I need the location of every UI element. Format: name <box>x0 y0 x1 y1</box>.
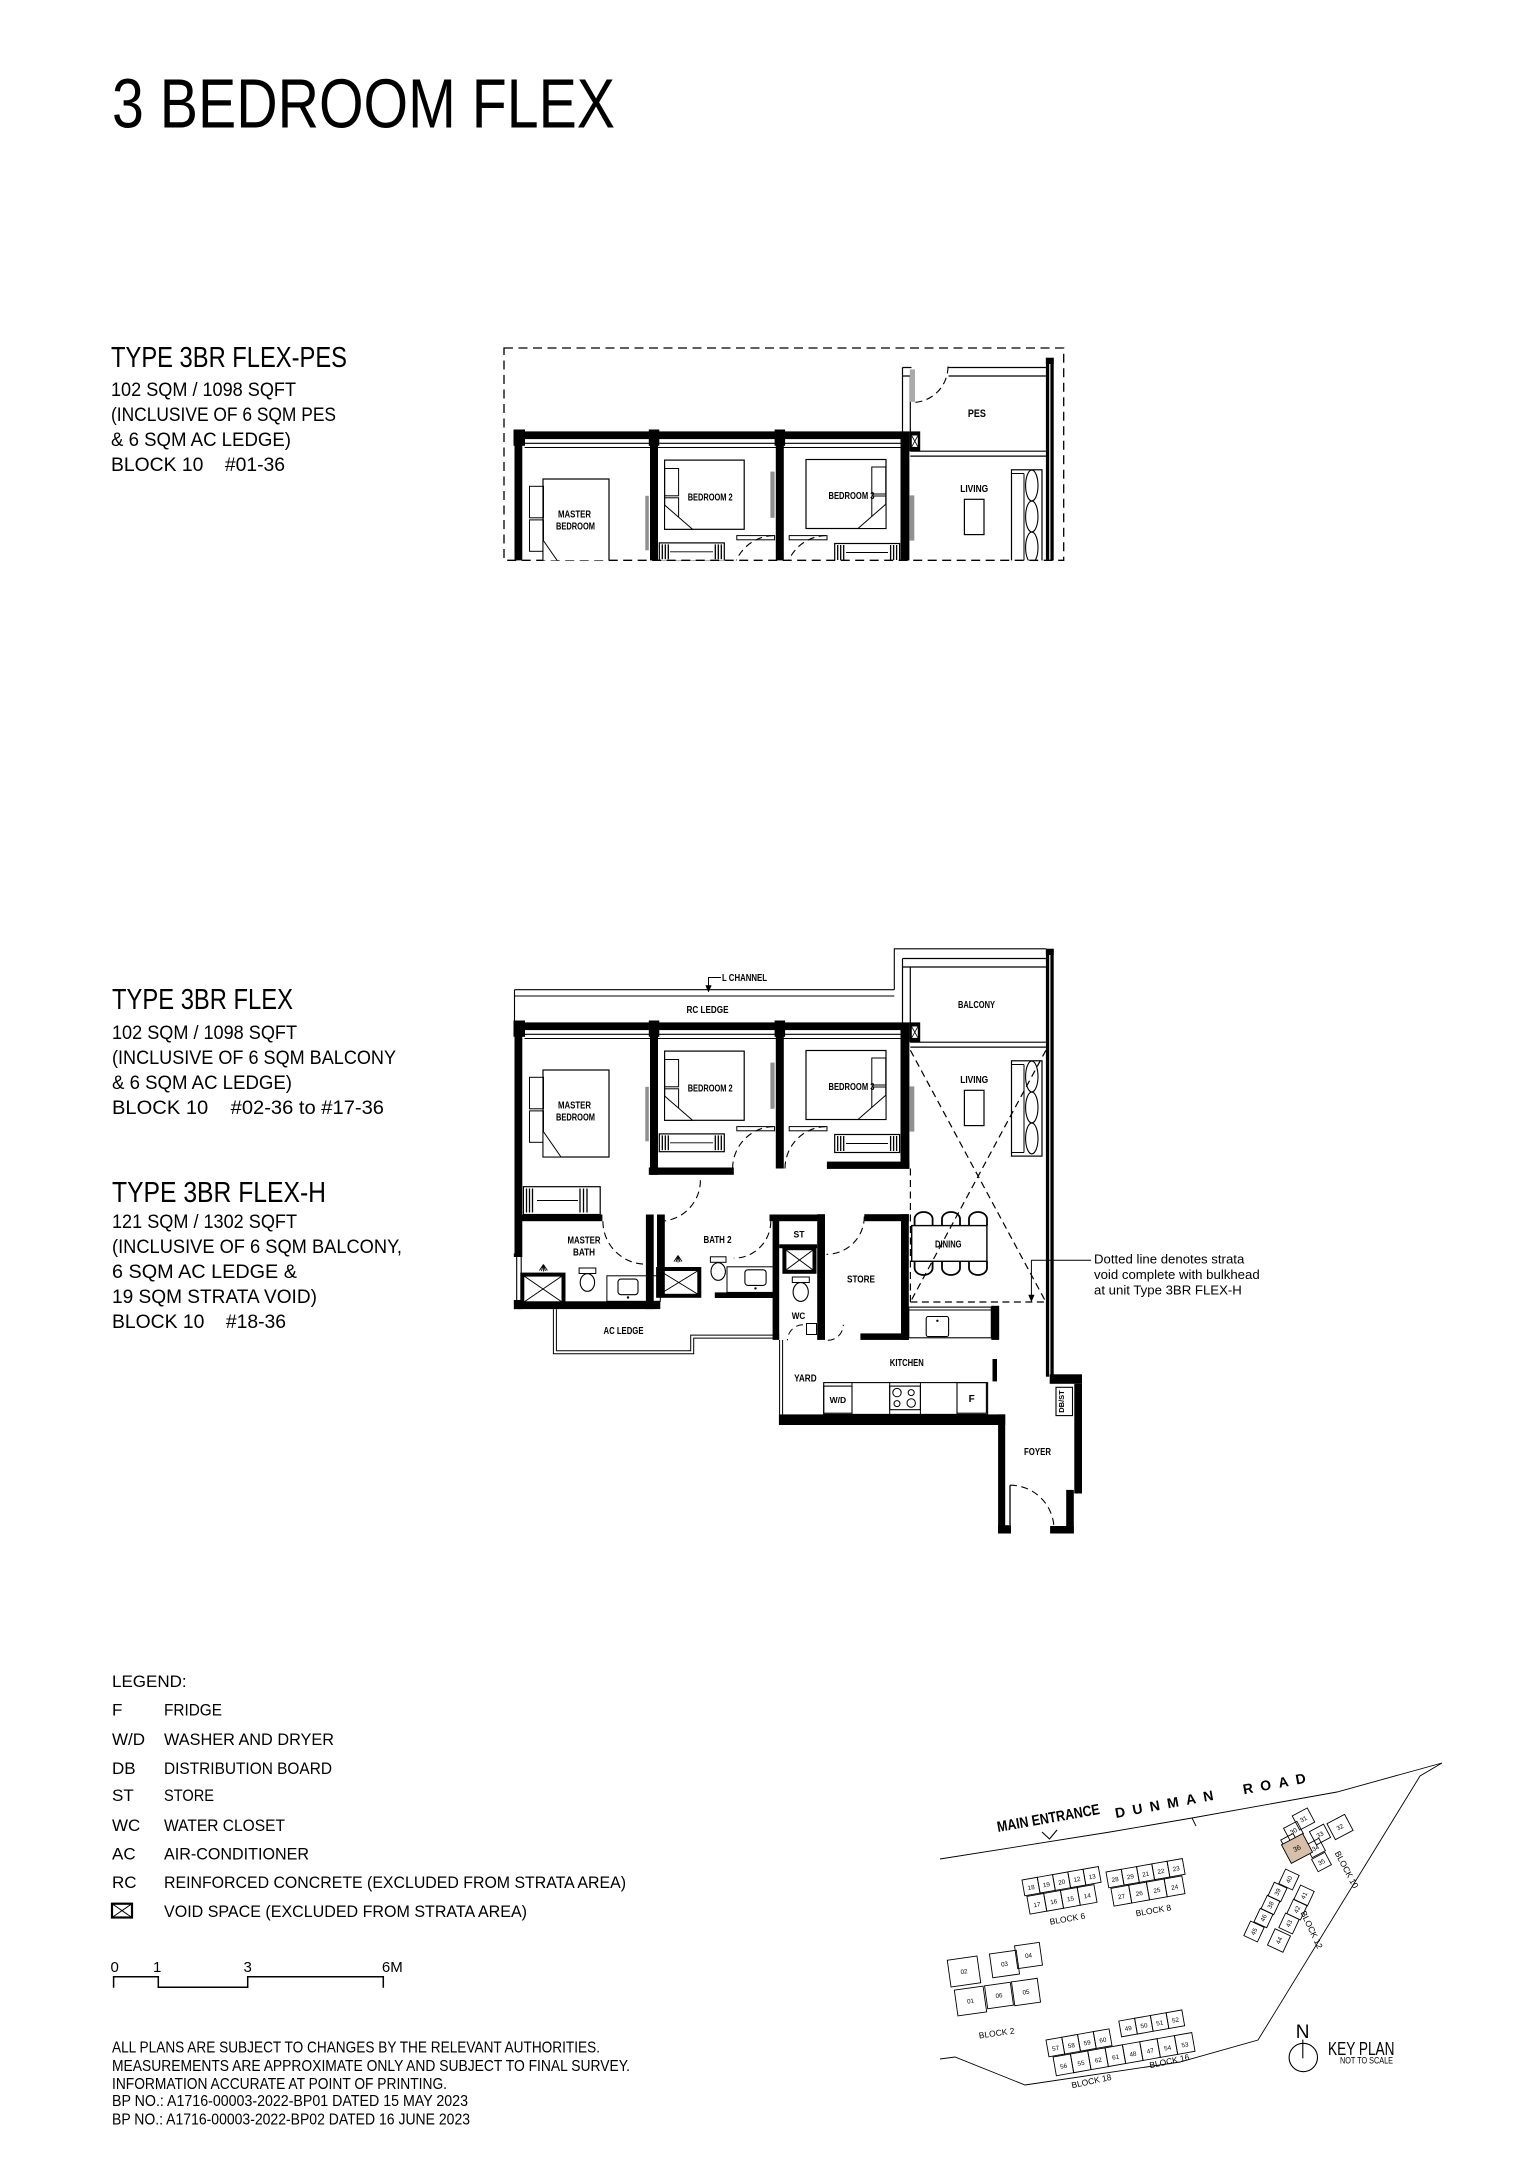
svg-text:102 SQM / 1098 SQFT: 102 SQM / 1098 SQFT <box>112 1023 297 1044</box>
svg-text:BLOCK 18: BLOCK 18 <box>1070 2072 1112 2090</box>
svg-text:BLOCK 10 #01-36: BLOCK 10 #01-36 <box>111 455 285 476</box>
svg-text:MEASUREMENTS ARE APPROXIMATE O: MEASUREMENTS ARE APPROXIMATE ONLY AND SU… <box>112 2058 630 2075</box>
svg-text:04: 04 <box>1025 1952 1033 1960</box>
svg-text:STORE: STORE <box>847 1274 875 1286</box>
svg-text:BALCONY: BALCONY <box>958 999 995 1011</box>
svg-text:& 6 SQM AC LEDGE): & 6 SQM AC LEDGE) <box>112 1073 292 1094</box>
svg-text:13: 13 <box>1088 1873 1097 1881</box>
svg-text:RC LEDGE: RC LEDGE <box>687 1004 729 1016</box>
svg-text:43: 43 <box>1285 1919 1295 1929</box>
svg-text:L CHANNEL: L CHANNEL <box>722 972 767 984</box>
svg-text:29: 29 <box>1126 1873 1135 1881</box>
svg-text:BLOCK 10 #18-36: BLOCK 10 #18-36 <box>112 1312 286 1333</box>
svg-text:121 SQM / 1302 SQFT: 121 SQM / 1302 SQFT <box>112 1212 297 1233</box>
svg-text:F: F <box>969 1394 975 1405</box>
svg-text:FRIDGE: FRIDGE <box>164 1701 222 1720</box>
svg-text:W/D: W/D <box>112 1730 145 1749</box>
svg-text:BATH: BATH <box>573 1248 595 1259</box>
svg-text:28: 28 <box>1111 1876 1120 1884</box>
svg-text:WC: WC <box>792 1311 806 1322</box>
svg-text:REINFORCED CONCRETE (EXCLUDED: REINFORCED CONCRETE (EXCLUDED FROM STRAT… <box>164 1873 626 1892</box>
svg-text:void complete with bulkhead: void complete with bulkhead <box>1094 1267 1260 1282</box>
svg-text:STORE: STORE <box>164 1786 214 1805</box>
svg-text:48: 48 <box>1129 2050 1138 2058</box>
svg-text:31: 31 <box>1299 1815 1309 1825</box>
svg-text:(INCLUSIVE OF 6 SQM BALCONY,: (INCLUSIVE OF 6 SQM BALCONY, <box>112 1237 402 1258</box>
svg-text:22: 22 <box>1157 1868 1166 1876</box>
svg-text:1: 1 <box>153 1959 161 1976</box>
svg-text:BLOCK 16: BLOCK 16 <box>1148 2052 1190 2070</box>
svg-text:DISTRIBUTION BOARD: DISTRIBUTION BOARD <box>164 1759 332 1778</box>
svg-text:57: 57 <box>1052 2045 1061 2053</box>
svg-text:14: 14 <box>1083 1892 1092 1900</box>
svg-text:62: 62 <box>1094 2057 1103 2065</box>
svg-text:25: 25 <box>1153 1887 1162 1895</box>
svg-text:19 SQM STRATA VOID): 19 SQM STRATA VOID) <box>112 1287 317 1308</box>
svg-text:DB: DB <box>112 1759 136 1778</box>
svg-text:17: 17 <box>1033 1901 1042 1909</box>
svg-text:05: 05 <box>1022 1989 1030 1997</box>
svg-text:NOT TO SCALE: NOT TO SCALE <box>1340 2056 1393 2066</box>
svg-text:PES: PES <box>968 408 986 420</box>
svg-text:59: 59 <box>1083 2039 1092 2047</box>
svg-text:33: 33 <box>1316 1830 1326 1840</box>
svg-text:ST: ST <box>112 1786 134 1805</box>
svg-text:58: 58 <box>1067 2042 1076 2050</box>
svg-text:40: 40 <box>1285 1875 1295 1885</box>
svg-text:KITCHEN: KITCHEN <box>890 1357 924 1369</box>
svg-text:BLOCK 10 #02-36 to #17-36: BLOCK 10 #02-36 to #17-36 <box>112 1098 384 1119</box>
svg-text:06: 06 <box>995 1992 1003 2000</box>
svg-text:AC: AC <box>112 1845 136 1864</box>
svg-text:16: 16 <box>1050 1898 1059 1906</box>
svg-text:VOID SPACE (EXCLUDED FROM STRA: VOID SPACE (EXCLUDED FROM STRATA AREA) <box>164 1902 527 1921</box>
svg-text:3: 3 <box>244 1959 252 1976</box>
svg-text:(INCLUSIVE OF 6 SQM BALCONY: (INCLUSIVE OF 6 SQM BALCONY <box>112 1048 396 1069</box>
svg-text:BLOCK 6: BLOCK 6 <box>1049 1911 1086 1927</box>
svg-text:AC LEDGE: AC LEDGE <box>604 1325 644 1337</box>
svg-text:DUNMAN ROAD: DUNMAN ROAD <box>1114 1769 1315 1821</box>
svg-text:50: 50 <box>1140 2022 1149 2030</box>
svg-text:N: N <box>1296 2022 1310 2043</box>
svg-text:18: 18 <box>1027 1884 1036 1892</box>
svg-text:01: 01 <box>967 1998 975 2006</box>
svg-text:YARD: YARD <box>794 1373 817 1385</box>
svg-text:WC: WC <box>112 1816 140 1835</box>
svg-text:32: 32 <box>1336 1823 1346 1833</box>
svg-text:6 SQM AC LEDGE &: 6 SQM AC LEDGE & <box>112 1262 297 1283</box>
svg-text:61: 61 <box>1112 2054 1121 2062</box>
svg-text:41: 41 <box>1300 1891 1310 1901</box>
svg-text:45: 45 <box>1250 1927 1260 1937</box>
svg-text:52: 52 <box>1172 2017 1181 2025</box>
svg-text:56: 56 <box>1060 2063 1069 2071</box>
svg-text:47: 47 <box>1146 2047 1155 2055</box>
svg-text:MASTER: MASTER <box>568 1236 602 1247</box>
svg-text:at unit Type 3BR FLEX-H: at unit Type 3BR FLEX-H <box>1094 1283 1242 1298</box>
svg-text:DINING: DINING <box>935 1239 962 1251</box>
svg-text:12: 12 <box>1073 1876 1082 1884</box>
svg-text:15: 15 <box>1067 1895 1076 1903</box>
svg-text:BP NO.: A1716-00003-2022-BP02: BP NO.: A1716-00003-2022-BP02 DATED 16 J… <box>112 2111 470 2128</box>
svg-text:RC: RC <box>112 1873 137 1892</box>
svg-text:20: 20 <box>1058 1878 1067 1886</box>
svg-text:TYPE 3BR FLEX-PES: TYPE 3BR FLEX-PES <box>111 342 347 374</box>
svg-text:23: 23 <box>1172 1865 1181 1873</box>
svg-text:26: 26 <box>1135 1890 1144 1898</box>
svg-text:FOYER: FOYER <box>1024 1446 1051 1458</box>
svg-text:53: 53 <box>1181 2041 1190 2049</box>
svg-text:WASHER AND DRYER: WASHER AND DRYER <box>164 1730 334 1749</box>
svg-text:19: 19 <box>1042 1881 1051 1889</box>
svg-text:TYPE 3BR FLEX-H: TYPE 3BR FLEX-H <box>112 1177 326 1209</box>
svg-text:39: 39 <box>1273 1887 1283 1897</box>
svg-text:ALL PLANS ARE SUBJECT TO CHANG: ALL PLANS ARE SUBJECT TO CHANGES BY THE … <box>112 2040 600 2057</box>
svg-text:BP NO.: A1716-00003-2022-BP01: BP NO.: A1716-00003-2022-BP01 DATED 15 M… <box>112 2093 468 2110</box>
svg-text:51: 51 <box>1156 2019 1165 2027</box>
svg-text:54: 54 <box>1164 2044 1173 2052</box>
svg-text:& 6 SQM AC LEDGE): & 6 SQM AC LEDGE) <box>111 430 291 451</box>
svg-text:BLOCK 8: BLOCK 8 <box>1135 1902 1172 1918</box>
svg-text:BLOCK 12: BLOCK 12 <box>1299 1909 1325 1950</box>
svg-text:F: F <box>112 1701 122 1720</box>
svg-text:46: 46 <box>1259 1913 1269 1923</box>
svg-text:27: 27 <box>1118 1893 1127 1901</box>
svg-text:35: 35 <box>1317 1858 1327 1868</box>
svg-text:44: 44 <box>1275 1936 1285 1946</box>
svg-text:03: 03 <box>1001 1961 1009 1969</box>
svg-text:DB/ST: DB/ST <box>1057 1390 1066 1413</box>
svg-text:WATER CLOSET: WATER CLOSET <box>164 1816 285 1835</box>
svg-text:INFORMATION ACCURATE AT POINT: INFORMATION ACCURATE AT POINT OF PRINTIN… <box>112 2076 447 2093</box>
svg-text:55: 55 <box>1077 2060 1086 2068</box>
svg-text:102 SQM / 1098 SQFT: 102 SQM / 1098 SQFT <box>111 380 296 401</box>
svg-text:3 BEDROOM FLEX: 3 BEDROOM FLEX <box>112 65 615 143</box>
svg-text:ST: ST <box>794 1230 805 1241</box>
svg-text:38: 38 <box>1266 1900 1276 1910</box>
svg-text:(INCLUSIVE OF 6 SQM PES: (INCLUSIVE OF 6 SQM PES <box>111 405 336 426</box>
svg-text:60: 60 <box>1099 2036 1108 2044</box>
svg-text:Dotted line denotes strata: Dotted line denotes strata <box>1094 1252 1245 1267</box>
svg-text:21: 21 <box>1142 1870 1151 1878</box>
svg-text:TYPE 3BR FLEX: TYPE 3BR FLEX <box>112 984 293 1016</box>
svg-text:BATH 2: BATH 2 <box>704 1235 732 1246</box>
svg-text:MAIN ENTRANCE: MAIN ENTRANCE <box>996 1801 1101 1836</box>
svg-text:BLOCK 10: BLOCK 10 <box>1333 1849 1361 1890</box>
svg-text:6M: 6M <box>382 1959 403 1976</box>
svg-text:LEGEND:: LEGEND: <box>112 1672 187 1691</box>
svg-text:49: 49 <box>1124 2025 1133 2033</box>
svg-text:24: 24 <box>1171 1884 1180 1892</box>
svg-text:W/D: W/D <box>830 1395 847 1405</box>
svg-text:BLOCK 2: BLOCK 2 <box>978 2026 1015 2041</box>
svg-text:02: 02 <box>960 1968 968 1976</box>
svg-text:0: 0 <box>111 1959 119 1976</box>
svg-text:AIR-CONDITIONER: AIR-CONDITIONER <box>164 1845 309 1864</box>
